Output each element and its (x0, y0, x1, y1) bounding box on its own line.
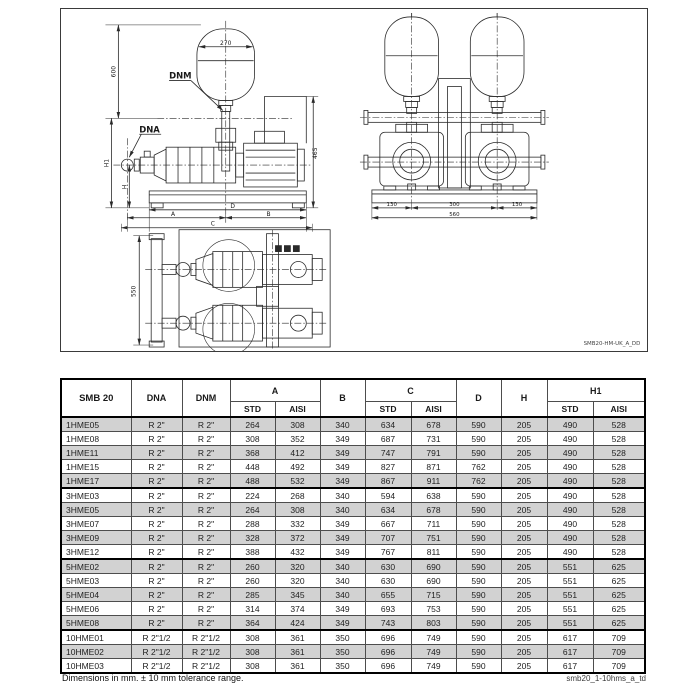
value-cell-b: 349 (320, 432, 365, 446)
table-row: 1HME11R 2"R 2"36841234974779159020549052… (61, 446, 645, 460)
value-cell-h1_std: 490 (547, 460, 593, 474)
value-cell-h1_aisi: 528 (593, 517, 645, 531)
subcol-c-aisi: AISI (411, 402, 456, 418)
value-cell-c_aisi: 911 (411, 474, 456, 489)
value-cell-a_std: 264 (230, 417, 275, 432)
subcol-h1-std: STD (547, 402, 593, 418)
model-cell: 10HME01 (61, 630, 131, 645)
value-cell-h1_std: 490 (547, 503, 593, 517)
dnm-port-label: DNM (169, 71, 191, 81)
pump-set-drawing: DNM DNA 600 H1 H 465 270 (61, 9, 647, 351)
value-cell-h1_aisi: 528 (593, 545, 645, 560)
value-cell-c_aisi: 751 (411, 531, 456, 545)
table-row: 3HME03R 2"R 2"22426834059463859020549052… (61, 488, 645, 503)
value-cell-h1_aisi: 528 (593, 417, 645, 432)
value-cell-a_aisi: 308 (275, 417, 320, 432)
value-cell-d: 590 (456, 602, 501, 616)
col-header-a: A (230, 379, 320, 402)
value-cell-c_std: 867 (365, 474, 411, 489)
value-cell-h1_aisi: 625 (593, 616, 645, 631)
model-cell: 1HME17 (61, 474, 131, 489)
value-cell-h: 205 (501, 630, 547, 645)
pump-motor-side (154, 96, 306, 186)
value-cell-b: 340 (320, 503, 365, 517)
value-cell-h1_aisi: 709 (593, 630, 645, 645)
value-cell-h1_std: 551 (547, 616, 593, 631)
value-cell-dnm: R 2" (182, 460, 230, 474)
value-cell-d: 590 (456, 503, 501, 517)
value-cell-d: 590 (456, 531, 501, 545)
dim-label-d: D (230, 203, 235, 210)
value-cell-d: 590 (456, 517, 501, 531)
subcol-h1-aisi: AISI (593, 402, 645, 418)
value-cell-d: 590 (456, 545, 501, 560)
value-cell-h: 205 (501, 602, 547, 616)
value-cell-c_std: 655 (365, 588, 411, 602)
model-cell: 1HME05 (61, 417, 131, 432)
value-cell-a_std: 308 (230, 645, 275, 659)
model-cell: 1HME11 (61, 446, 131, 460)
value-cell-c_std: 696 (365, 659, 411, 674)
value-cell-h1_std: 490 (547, 474, 593, 489)
value-cell-dna: R 2"1/2 (131, 645, 182, 659)
value-cell-h: 205 (501, 531, 547, 545)
col-header-d: D (456, 379, 501, 417)
plan-view-drawing: 550 (130, 230, 330, 351)
value-cell-dnm: R 2" (182, 432, 230, 446)
value-cell-d: 590 (456, 574, 501, 588)
front-dimensions: 130 300 130 560 (372, 200, 537, 220)
value-cell-h: 205 (501, 517, 547, 531)
subcol-a-aisi: AISI (275, 402, 320, 418)
value-cell-d: 590 (456, 417, 501, 432)
value-cell-c_aisi: 690 (411, 559, 456, 574)
value-cell-dna: R 2"1/2 (131, 659, 182, 674)
value-cell-h: 205 (501, 488, 547, 503)
model-cell: 3HME05 (61, 503, 131, 517)
side-view-drawing: DNM DNA 600 H1 H 465 270 (103, 21, 319, 232)
value-cell-b: 340 (320, 417, 365, 432)
table-row: 5HME06R 2"R 2"31437434969375359020555162… (61, 602, 645, 616)
value-cell-a_aisi: 361 (275, 645, 320, 659)
value-cell-dnm: R 2" (182, 503, 230, 517)
value-cell-h1_std: 551 (547, 574, 593, 588)
col-header-h: H (501, 379, 547, 417)
value-cell-d: 762 (456, 460, 501, 474)
dim-label-270: 270 (220, 40, 232, 47)
value-cell-h1_aisi: 528 (593, 503, 645, 517)
value-cell-b: 349 (320, 545, 365, 560)
dim-label-h1: H1 (103, 159, 110, 167)
value-cell-c_aisi: 638 (411, 488, 456, 503)
value-cell-dna: R 2" (131, 559, 182, 574)
table-row: 10HME03R 2"1/2R 2"1/23083613506967495902… (61, 659, 645, 674)
value-cell-dnm: R 2" (182, 488, 230, 503)
value-cell-c_std: 707 (365, 531, 411, 545)
value-cell-h1_std: 617 (547, 630, 593, 645)
value-cell-d: 590 (456, 446, 501, 460)
value-cell-dna: R 2" (131, 616, 182, 631)
value-cell-dna: R 2" (131, 488, 182, 503)
value-cell-dnm: R 2" (182, 517, 230, 531)
model-cell: 5HME08 (61, 616, 131, 631)
document-code: smb20_1-10hms_a_td (566, 674, 646, 683)
value-cell-dna: R 2" (131, 432, 182, 446)
value-cell-d: 590 (456, 432, 501, 446)
table-row: 5HME03R 2"R 2"26032034063069059020555162… (61, 574, 645, 588)
model-cell: 5HME06 (61, 602, 131, 616)
value-cell-dnm: R 2"1/2 (182, 659, 230, 674)
value-cell-d: 590 (456, 659, 501, 674)
value-cell-a_aisi: 320 (275, 559, 320, 574)
value-cell-dna: R 2" (131, 460, 182, 474)
model-cell: 3HME03 (61, 488, 131, 503)
dimension-table: SMB 20 DNA DNM A B C D H H1 STD AISI STD… (60, 378, 646, 674)
value-cell-b: 340 (320, 588, 365, 602)
value-cell-d: 590 (456, 616, 501, 631)
value-cell-dna: R 2" (131, 574, 182, 588)
value-cell-h1_aisi: 528 (593, 446, 645, 460)
value-cell-dna: R 2" (131, 517, 182, 531)
value-cell-b: 349 (320, 474, 365, 489)
value-cell-dna: R 2" (131, 474, 182, 489)
value-cell-dnm: R 2" (182, 474, 230, 489)
value-cell-c_aisi: 731 (411, 432, 456, 446)
value-cell-h1_aisi: 528 (593, 474, 645, 489)
table-row: 5HME04R 2"R 2"28534534065571559020555162… (61, 588, 645, 602)
base-frame-side (149, 191, 306, 208)
value-cell-c_std: 696 (365, 645, 411, 659)
pumps-front (364, 124, 545, 190)
value-cell-h1_std: 551 (547, 602, 593, 616)
value-cell-h1_std: 551 (547, 588, 593, 602)
value-cell-c_aisi: 871 (411, 460, 456, 474)
value-cell-a_aisi: 268 (275, 488, 320, 503)
pressure-tanks-front (385, 13, 524, 113)
table-row: 3HME09R 2"R 2"32837234970775159020549052… (61, 531, 645, 545)
value-cell-h: 205 (501, 574, 547, 588)
value-cell-c_aisi: 678 (411, 417, 456, 432)
value-cell-h1_aisi: 625 (593, 574, 645, 588)
model-cell: 3HME07 (61, 517, 131, 531)
table-row: 1HME17R 2"R 2"48853234986791176220549052… (61, 474, 645, 489)
value-cell-c_std: 667 (365, 517, 411, 531)
value-cell-h1_aisi: 625 (593, 602, 645, 616)
subcol-a-std: STD (230, 402, 275, 418)
value-cell-a_aisi: 352 (275, 432, 320, 446)
value-cell-h: 205 (501, 616, 547, 631)
value-cell-c_std: 747 (365, 446, 411, 460)
model-cell: 3HME12 (61, 545, 131, 560)
dim-label-465: 465 (312, 147, 319, 159)
dim-label-600: 600 (110, 66, 117, 78)
value-cell-c_aisi: 791 (411, 446, 456, 460)
table-row: 1HME15R 2"R 2"44849234982787176220549052… (61, 460, 645, 474)
value-cell-dnm: R 2" (182, 417, 230, 432)
value-cell-c_std: 693 (365, 602, 411, 616)
value-cell-a_std: 308 (230, 432, 275, 446)
value-cell-h1_std: 490 (547, 531, 593, 545)
value-cell-h: 205 (501, 474, 547, 489)
header-row-groups: SMB 20 DNA DNM A B C D H H1 (61, 379, 645, 402)
value-cell-c_std: 634 (365, 417, 411, 432)
drawing-code: SMB20-HM-UK_A_DD (584, 341, 641, 347)
value-cell-c_std: 687 (365, 432, 411, 446)
value-cell-h: 205 (501, 446, 547, 460)
model-cell: 5HME02 (61, 559, 131, 574)
value-cell-c_std: 743 (365, 616, 411, 631)
value-cell-h: 205 (501, 588, 547, 602)
model-cell: 10HME02 (61, 645, 131, 659)
value-cell-dna: R 2"1/2 (131, 630, 182, 645)
plan-manifold (149, 234, 196, 347)
value-cell-a_aisi: 432 (275, 545, 320, 560)
value-cell-dnm: R 2" (182, 545, 230, 560)
value-cell-dna: R 2" (131, 531, 182, 545)
value-cell-c_aisi: 749 (411, 659, 456, 674)
value-cell-a_aisi: 332 (275, 517, 320, 531)
value-cell-a_std: 368 (230, 446, 275, 460)
value-cell-a_aisi: 412 (275, 446, 320, 460)
value-cell-d: 590 (456, 559, 501, 574)
value-cell-b: 349 (320, 517, 365, 531)
value-cell-a_aisi: 532 (275, 474, 320, 489)
value-cell-b: 340 (320, 574, 365, 588)
value-cell-h: 205 (501, 545, 547, 560)
value-cell-d: 762 (456, 474, 501, 489)
dimension-table-section: SMB 20 DNA DNM A B C D H H1 STD AISI STD… (60, 378, 646, 674)
value-cell-c_aisi: 678 (411, 503, 456, 517)
value-cell-b: 340 (320, 488, 365, 503)
table-row: 3HME07R 2"R 2"28833234966771159020549052… (61, 517, 645, 531)
value-cell-a_aisi: 492 (275, 460, 320, 474)
value-cell-dna: R 2" (131, 545, 182, 560)
value-cell-h1_std: 490 (547, 446, 593, 460)
value-cell-b: 350 (320, 630, 365, 645)
value-cell-a_std: 224 (230, 488, 275, 503)
model-cell: 5HME03 (61, 574, 131, 588)
suction-valve (121, 151, 154, 173)
dim-label-130-right: 130 (512, 202, 523, 208)
model-cell: 10HME03 (61, 659, 131, 674)
dim-label-130-left: 130 (387, 202, 398, 208)
col-header-model: SMB 20 (61, 379, 131, 417)
value-cell-b: 349 (320, 446, 365, 460)
value-cell-dna: R 2" (131, 588, 182, 602)
table-row: 5HME02R 2"R 2"26032034063069059020555162… (61, 559, 645, 574)
value-cell-d: 590 (456, 588, 501, 602)
value-cell-a_std: 308 (230, 630, 275, 645)
value-cell-c_aisi: 811 (411, 545, 456, 560)
value-cell-h: 205 (501, 645, 547, 659)
value-cell-c_aisi: 690 (411, 574, 456, 588)
value-cell-dnm: R 2" (182, 446, 230, 460)
col-header-c: C (365, 379, 456, 402)
dim-label-560: 560 (449, 212, 460, 218)
value-cell-h1_std: 617 (547, 659, 593, 674)
value-cell-c_aisi: 715 (411, 588, 456, 602)
model-cell: 3HME09 (61, 531, 131, 545)
value-cell-a_std: 260 (230, 574, 275, 588)
value-cell-dna: R 2" (131, 446, 182, 460)
model-cell: 5HME04 (61, 588, 131, 602)
value-cell-h1_std: 551 (547, 559, 593, 574)
dim-label-c: C (211, 221, 215, 228)
col-header-b: B (320, 379, 365, 417)
subcol-c-std: STD (365, 402, 411, 418)
value-cell-dnm: R 2" (182, 602, 230, 616)
value-cell-h1_aisi: 528 (593, 432, 645, 446)
value-cell-h: 205 (501, 559, 547, 574)
value-cell-h: 205 (501, 503, 547, 517)
value-cell-c_std: 634 (365, 503, 411, 517)
value-cell-h1_std: 617 (547, 645, 593, 659)
value-cell-dnm: R 2"1/2 (182, 630, 230, 645)
value-cell-h1_std: 490 (547, 417, 593, 432)
value-cell-b: 349 (320, 616, 365, 631)
value-cell-h1_aisi: 528 (593, 460, 645, 474)
value-cell-d: 590 (456, 488, 501, 503)
col-header-h1: H1 (547, 379, 645, 402)
value-cell-b: 350 (320, 645, 365, 659)
value-cell-b: 350 (320, 659, 365, 674)
dim-label-300: 300 (449, 202, 460, 208)
value-cell-h1_aisi: 528 (593, 531, 645, 545)
value-cell-c_aisi: 803 (411, 616, 456, 631)
value-cell-a_std: 448 (230, 460, 275, 474)
dna-port-label: DNA (139, 124, 160, 134)
value-cell-c_aisi: 749 (411, 645, 456, 659)
value-cell-c_std: 630 (365, 559, 411, 574)
value-cell-b: 349 (320, 460, 365, 474)
value-cell-c_aisi: 711 (411, 517, 456, 531)
value-cell-h1_aisi: 528 (593, 488, 645, 503)
value-cell-a_aisi: 374 (275, 602, 320, 616)
value-cell-h1_aisi: 709 (593, 659, 645, 674)
value-cell-a_std: 285 (230, 588, 275, 602)
value-cell-dnm: R 2"1/2 (182, 645, 230, 659)
value-cell-c_std: 696 (365, 630, 411, 645)
dim-label-b: B (266, 211, 270, 218)
table-row: 1HME08R 2"R 2"30835234968773159020549052… (61, 432, 645, 446)
value-cell-d: 590 (456, 645, 501, 659)
table-row: 3HME12R 2"R 2"38843234976781159020549052… (61, 545, 645, 560)
value-cell-b: 349 (320, 602, 365, 616)
value-cell-a_aisi: 345 (275, 588, 320, 602)
value-cell-dnm: R 2" (182, 588, 230, 602)
value-cell-a_aisi: 308 (275, 503, 320, 517)
manifold-pipe (364, 110, 545, 132)
table-row: 10HME02R 2"1/2R 2"1/23083613506967495902… (61, 645, 645, 659)
value-cell-a_std: 388 (230, 545, 275, 560)
value-cell-h1_std: 490 (547, 517, 593, 531)
col-header-dnm: DNM (182, 379, 230, 417)
col-header-dna: DNA (131, 379, 182, 417)
value-cell-h: 205 (501, 417, 547, 432)
value-cell-a_std: 364 (230, 616, 275, 631)
table-row: 1HME05R 2"R 2"26430834063467859020549052… (61, 417, 645, 432)
base-frame-front (372, 184, 537, 203)
value-cell-h: 205 (501, 460, 547, 474)
table-row: 3HME05R 2"R 2"26430834063467859020549052… (61, 503, 645, 517)
value-cell-h1_aisi: 709 (593, 645, 645, 659)
side-bottom-dimensions: D A B C (121, 203, 312, 232)
dim-label-a: A (171, 211, 176, 218)
dim-label-h: H (121, 185, 128, 189)
dim-label-550: 550 (130, 285, 137, 297)
plan-dimension: 550 (130, 236, 153, 345)
value-cell-dna: R 2" (131, 503, 182, 517)
value-cell-a_aisi: 320 (275, 574, 320, 588)
value-cell-dnm: R 2" (182, 531, 230, 545)
value-cell-dna: R 2" (131, 602, 182, 616)
model-cell: 1HME08 (61, 432, 131, 446)
value-cell-h: 205 (501, 432, 547, 446)
value-cell-c_std: 594 (365, 488, 411, 503)
value-cell-b: 349 (320, 531, 365, 545)
plan-pump-1 (196, 246, 322, 288)
value-cell-a_std: 288 (230, 517, 275, 531)
value-cell-a_std: 328 (230, 531, 275, 545)
value-cell-a_aisi: 372 (275, 531, 320, 545)
dimension-table-body: 1HME05R 2"R 2"26430834063467859020549052… (61, 417, 645, 673)
value-cell-c_std: 630 (365, 574, 411, 588)
value-cell-a_std: 308 (230, 659, 275, 674)
value-cell-h1_aisi: 625 (593, 559, 645, 574)
value-cell-a_aisi: 361 (275, 630, 320, 645)
value-cell-dnm: R 2" (182, 559, 230, 574)
model-cell: 1HME15 (61, 460, 131, 474)
value-cell-a_std: 264 (230, 503, 275, 517)
table-row: 5HME08R 2"R 2"36442434974380359020555162… (61, 616, 645, 631)
value-cell-b: 340 (320, 559, 365, 574)
value-cell-c_std: 767 (365, 545, 411, 560)
value-cell-d: 590 (456, 630, 501, 645)
value-cell-dna: R 2" (131, 417, 182, 432)
value-cell-h: 205 (501, 659, 547, 674)
value-cell-a_std: 488 (230, 474, 275, 489)
value-cell-h1_aisi: 625 (593, 588, 645, 602)
value-cell-dnm: R 2" (182, 574, 230, 588)
value-cell-a_aisi: 361 (275, 659, 320, 674)
page-footer: Dimensions in mm. ± 10 mm tolerance rang… (62, 673, 646, 683)
value-cell-h1_std: 490 (547, 488, 593, 503)
value-cell-a_std: 314 (230, 602, 275, 616)
value-cell-c_aisi: 749 (411, 630, 456, 645)
value-cell-c_aisi: 753 (411, 602, 456, 616)
value-cell-a_aisi: 424 (275, 616, 320, 631)
value-cell-a_std: 260 (230, 559, 275, 574)
value-cell-c_std: 827 (365, 460, 411, 474)
technical-drawing-panel: DNM DNA 600 H1 H 465 270 (60, 8, 648, 352)
tolerance-note: Dimensions in mm. ± 10 mm tolerance rang… (62, 673, 244, 683)
front-view-drawing: 130 300 130 560 (360, 13, 549, 220)
table-row: 10HME01R 2"1/2R 2"1/23083613506967495902… (61, 630, 645, 645)
value-cell-dnm: R 2" (182, 616, 230, 631)
value-cell-h1_std: 490 (547, 432, 593, 446)
value-cell-h1_std: 490 (547, 545, 593, 560)
